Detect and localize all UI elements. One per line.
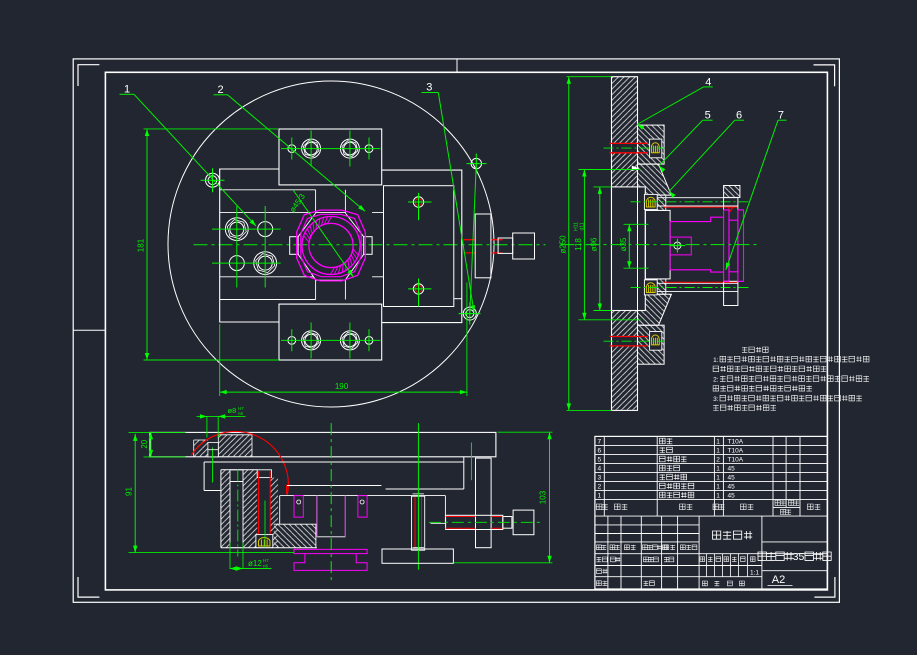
svg-text:2:: 2: <box>713 377 719 384</box>
svg-text:7: 7 <box>597 439 601 446</box>
svg-text:190: 190 <box>335 382 349 391</box>
svg-text:H7: H7 <box>263 558 269 563</box>
svg-text:1: 1 <box>716 484 720 491</box>
svg-text:1: 1 <box>716 475 720 482</box>
svg-text:ø96: ø96 <box>590 237 599 251</box>
svg-text:ø12: ø12 <box>248 559 262 568</box>
svg-text:1: 1 <box>716 466 720 473</box>
svg-text:2: 2 <box>217 84 223 96</box>
svg-text:20: 20 <box>140 439 149 448</box>
svg-text:118: 118 <box>574 238 583 251</box>
svg-text:1:: 1: <box>713 357 719 364</box>
svg-text:1: 1 <box>124 84 130 96</box>
svg-text:T10A: T10A <box>728 448 744 455</box>
svg-text:n6: n6 <box>238 411 244 416</box>
svg-text:35: 35 <box>793 551 805 563</box>
svg-text:45: 45 <box>728 484 736 491</box>
svg-text:T10A: T10A <box>728 439 744 446</box>
svg-text:T10A: T10A <box>728 457 744 464</box>
svg-text:45: 45 <box>728 493 736 500</box>
svg-text:45: 45 <box>728 475 736 482</box>
svg-text:4: 4 <box>597 466 601 473</box>
svg-text:45: 45 <box>728 466 736 473</box>
svg-text:1: 1 <box>716 439 720 446</box>
svg-text:103: 103 <box>539 490 548 504</box>
svg-text:2: 2 <box>597 484 601 491</box>
svg-text:ø35: ø35 <box>619 237 628 251</box>
svg-text:6: 6 <box>597 448 601 455</box>
svg-text:ø250: ø250 <box>559 235 568 254</box>
svg-text:n6: n6 <box>263 564 269 569</box>
svg-text:1:1: 1:1 <box>750 569 759 576</box>
svg-text:1: 1 <box>597 493 601 500</box>
svg-text:91: 91 <box>124 487 133 496</box>
svg-text:1: 1 <box>716 493 720 500</box>
svg-text:d11: d11 <box>580 222 586 230</box>
svg-text:3:: 3: <box>713 396 719 403</box>
svg-text:181: 181 <box>137 238 146 252</box>
svg-text:ø8: ø8 <box>228 406 237 415</box>
svg-text:1: 1 <box>716 448 720 455</box>
svg-text:2: 2 <box>716 457 720 464</box>
svg-text:3: 3 <box>426 82 432 94</box>
svg-text:A2: A2 <box>772 574 785 586</box>
svg-text:5: 5 <box>597 457 601 464</box>
svg-text:3: 3 <box>597 475 601 482</box>
